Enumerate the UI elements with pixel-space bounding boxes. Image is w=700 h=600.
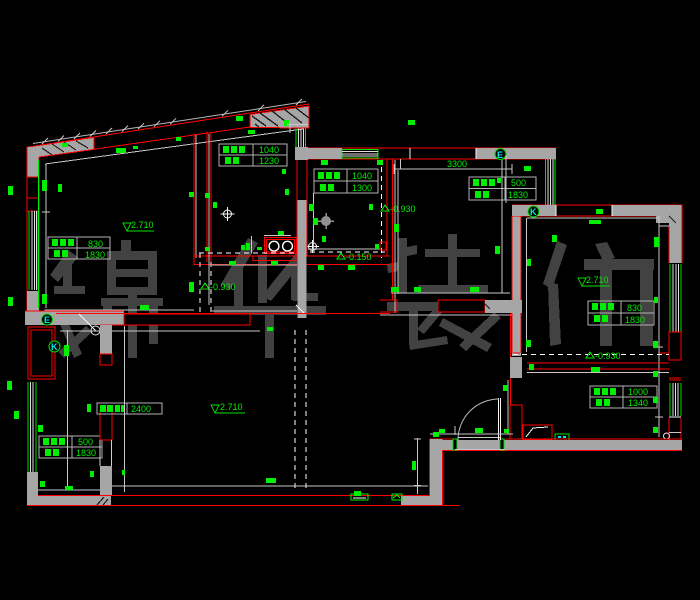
svg-text:830: 830 xyxy=(627,303,642,313)
svg-text:-0.930: -0.930 xyxy=(390,204,416,214)
svg-text:1230: 1230 xyxy=(259,156,279,166)
svg-text:2.710: 2.710 xyxy=(220,402,243,412)
svg-text:1830: 1830 xyxy=(76,448,96,458)
svg-text:K: K xyxy=(51,342,58,352)
svg-text:-0.930: -0.930 xyxy=(210,282,236,292)
svg-text:1040: 1040 xyxy=(259,145,279,155)
svg-text:500: 500 xyxy=(511,178,526,188)
svg-text:E: E xyxy=(497,150,503,160)
svg-text:3300: 3300 xyxy=(447,159,467,169)
svg-text:2400: 2400 xyxy=(131,404,151,414)
svg-text:1830: 1830 xyxy=(508,190,528,200)
svg-text:500: 500 xyxy=(78,437,93,447)
svg-text:1830: 1830 xyxy=(625,315,645,325)
svg-text:1040: 1040 xyxy=(352,171,372,181)
svg-text:E: E xyxy=(44,315,50,325)
svg-text:830: 830 xyxy=(88,239,103,249)
svg-text:2.710: 2.710 xyxy=(131,220,154,230)
svg-text:-0.930: -0.930 xyxy=(595,351,621,361)
svg-text:-0.150: -0.150 xyxy=(346,252,372,262)
svg-text:1000: 1000 xyxy=(628,387,648,397)
svg-text:2.710: 2.710 xyxy=(586,275,609,285)
svg-text:1830: 1830 xyxy=(85,250,105,260)
svg-text:1300: 1300 xyxy=(352,183,372,193)
svg-text:K: K xyxy=(530,207,537,217)
svg-text:1340: 1340 xyxy=(628,398,648,408)
